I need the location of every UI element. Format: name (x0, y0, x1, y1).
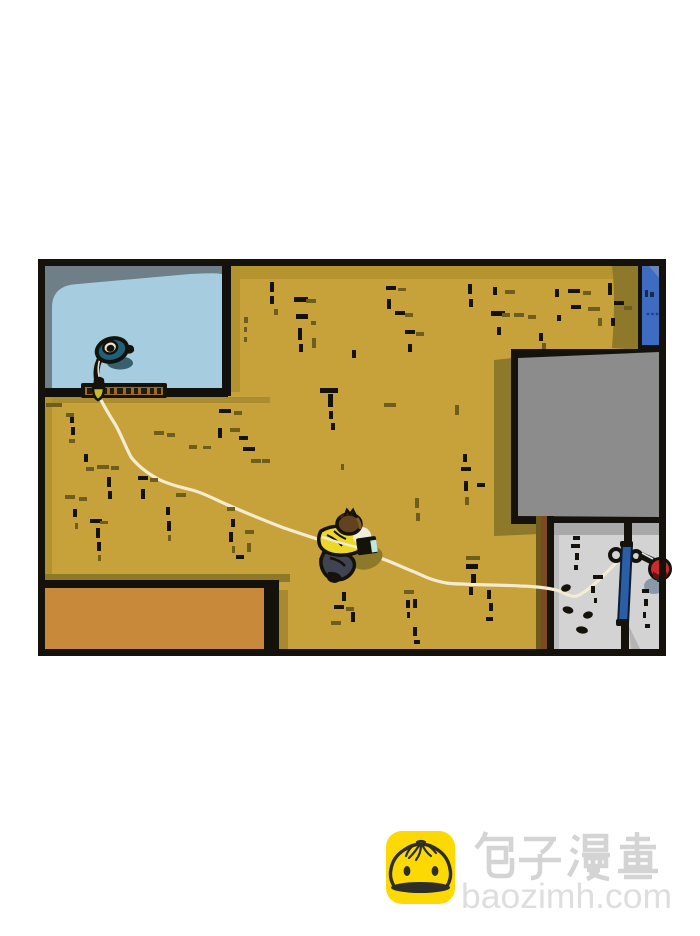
svg-text:baozimh.com: baozimh.com (461, 876, 672, 916)
